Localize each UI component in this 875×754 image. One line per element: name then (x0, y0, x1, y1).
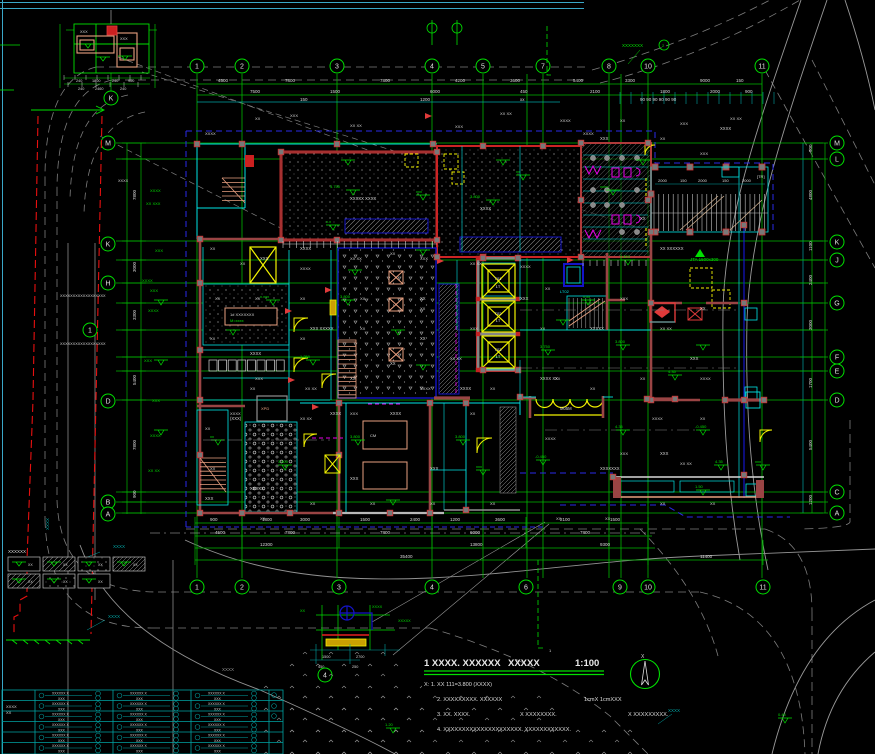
svg-text:K: K (109, 96, 114, 103)
svg-text:4500: 4500 (215, 530, 226, 535)
svg-text:35400: 35400 (400, 554, 413, 559)
svg-text:XX: XX (390, 361, 396, 366)
svg-text:3300: 3300 (625, 78, 636, 83)
svg-text:XX: XX (490, 501, 496, 506)
svg-text:xx: xx (516, 169, 520, 174)
svg-text:XXXXXX X: XXXXXX X (208, 702, 226, 706)
svg-text:JTA 1500x300: JTA 1500x300 (690, 257, 719, 262)
svg-text:xx: xx (210, 434, 214, 439)
svg-text:XX XX: XX XX (350, 256, 362, 261)
svg-text:XX: XX (360, 326, 366, 331)
svg-text:XXXX: XXXX (250, 351, 261, 356)
svg-text:XXXX: XXXX (222, 667, 234, 672)
svg-text:XXXXXX X: XXXXXX X (52, 692, 70, 696)
svg-text:xxxx: xxxx (600, 184, 608, 189)
svg-text:XXX: XXX (690, 356, 699, 361)
svg-text:3.800: 3.800 (620, 254, 631, 259)
svg-text:XXX: XXX (214, 708, 222, 712)
svg-text:XXXXXX X: XXXXXX X (52, 723, 70, 727)
svg-text:T03: T03 (495, 347, 503, 352)
svg-text:3.800: 3.800 (350, 434, 361, 439)
svg-text:4.35: 4.35 (715, 459, 724, 464)
svg-text:XXXXXX X: XXXXXX X (208, 692, 226, 696)
svg-text:XX: XX (420, 306, 426, 311)
svg-text:XX XXX: XX XXX (146, 201, 161, 206)
svg-text:XXX: XXX (350, 411, 358, 416)
svg-text:450: 450 (520, 89, 528, 94)
svg-text:1.20: 1.20 (385, 722, 394, 727)
svg-text:XX XX: XX XX (148, 468, 160, 473)
svg-text:x.x: x.x (326, 219, 331, 224)
svg-text:XXXX: XXXX (142, 278, 153, 283)
svg-text:XXX: XXX (136, 708, 144, 712)
svg-text:K: K (106, 242, 111, 249)
svg-text:D: D (834, 398, 839, 405)
svg-text:XXXXXX X: XXXXXX X (130, 692, 148, 696)
svg-text:M: M (105, 141, 111, 148)
svg-text:XXX: XXX (255, 376, 263, 381)
svg-text:2: 2 (240, 64, 244, 71)
svg-text:XXXX: XXXX (150, 433, 161, 438)
svg-text:7800: 7800 (132, 439, 137, 450)
svg-text:900: 900 (745, 89, 753, 94)
svg-text:XX: XX (420, 336, 426, 341)
svg-text:x.xx: x.xx (583, 294, 590, 299)
svg-text:XXX: XXX (600, 136, 609, 141)
svg-text:XX: XX (310, 501, 316, 506)
svg-text:M=xxxx: M=xxxx (230, 318, 244, 323)
svg-text:XX XX: XX XX (300, 416, 312, 421)
svg-text:1.250: 1.250 (300, 354, 311, 359)
svg-text:XXX: XXX (58, 697, 66, 701)
svg-text:XXXX: XXXX (720, 126, 731, 131)
svg-text:XX: XX (240, 261, 246, 266)
svg-text:T01: T01 (495, 276, 503, 281)
svg-text:XX: XX (28, 580, 33, 584)
svg-text:2400: 2400 (410, 517, 421, 522)
svg-text:2100: 2100 (590, 89, 601, 94)
svg-text:XXX: XXX (136, 718, 144, 722)
svg-text:XX: XX (210, 246, 216, 251)
svg-text:1: 1 (195, 64, 199, 71)
svg-text:XXXXXX X: XXXXXX X (130, 734, 148, 738)
svg-text:XXX: XXX (214, 739, 222, 743)
svg-text:3.750: 3.750 (330, 184, 341, 189)
svg-text:1500: 1500 (610, 517, 621, 522)
svg-text:XXX: XXX (150, 288, 158, 293)
svg-text:150: 150 (722, 178, 729, 183)
svg-text:XX XX: XX XX (470, 261, 482, 266)
svg-text:XXX: XXX (700, 151, 708, 156)
svg-text:3600: 3600 (510, 78, 521, 83)
svg-text:XX: XX (28, 563, 33, 567)
svg-text:XPD: XPD (261, 406, 269, 411)
svg-text:[TR]: [TR] (757, 174, 765, 179)
svg-text:3.800: 3.800 (340, 294, 351, 299)
svg-text:9000: 9000 (700, 78, 711, 83)
svg-text:-0.450: -0.450 (695, 424, 707, 429)
svg-text:XXXX: XXXX (480, 206, 491, 211)
svg-text:XX: XX (255, 116, 261, 121)
svg-text:XXXXX: XXXXX (508, 658, 540, 669)
svg-text:XXXX: XXXX (108, 614, 120, 619)
svg-text:XX: XX (98, 580, 103, 584)
svg-text:XXX: XXX (58, 739, 66, 743)
svg-text:5400: 5400 (573, 78, 584, 83)
svg-text:XXXXXX X: XXXXXX X (52, 734, 70, 738)
svg-text:XX: XX (420, 296, 426, 301)
svg-text:240: 240 (78, 87, 84, 91)
svg-text:XXXX: XXXX (545, 436, 556, 441)
svg-text:8: 8 (607, 64, 611, 71)
svg-text:7500: 7500 (250, 89, 261, 94)
svg-text:XX: XX (640, 216, 646, 221)
svg-text:XXX: XXX (120, 37, 128, 41)
svg-text:XXXXX: XXXXX (398, 619, 411, 623)
svg-text:2000: 2000 (698, 178, 708, 183)
svg-text:3.800: 3.800 (278, 459, 289, 464)
svg-text:900: 900 (808, 144, 813, 152)
svg-text:150: 150 (300, 97, 308, 102)
svg-text:XXXX: XXXX (230, 411, 241, 416)
svg-text:X: 1. XX 111=3.800 (XXXX): X: 1. XX 111=3.800 (XXXX) (424, 682, 492, 688)
svg-text:XXX: XXX (152, 398, 160, 403)
svg-text:M05M: M05M (560, 406, 572, 411)
svg-text:XXX: XXX (260, 256, 269, 261)
svg-text:L: L (835, 157, 839, 164)
svg-text:1cmX 1cmXXX: 1cmX 1cmXXX (584, 697, 622, 703)
svg-text:XXX: XXX (520, 296, 529, 301)
svg-text:1800: 1800 (660, 89, 671, 94)
svg-text:XX: XX (590, 386, 596, 391)
svg-text:XX: XX (350, 376, 356, 381)
svg-text:3.750: 3.750 (540, 344, 551, 349)
svg-text:(XXX): (XXX) (230, 416, 242, 421)
svg-text:1.50: 1.50 (695, 484, 704, 489)
svg-text:XX: XX (205, 426, 211, 431)
svg-text:240: 240 (76, 79, 82, 83)
svg-text:XX: XX (300, 609, 306, 613)
svg-text:1:100: 1:100 (575, 658, 599, 669)
svg-text:XXX: XXX (58, 729, 66, 733)
svg-text:XXX: XXX (205, 496, 214, 501)
svg-text:11: 11 (759, 585, 766, 592)
svg-text:XXXXXX X: XXXXXX X (52, 702, 70, 706)
svg-text:7800: 7800 (285, 78, 296, 83)
svg-text:XX: XX (660, 136, 666, 141)
svg-text:7800: 7800 (380, 530, 391, 535)
svg-text:XXX: XXX (136, 697, 144, 701)
svg-text:11400: 11400 (700, 554, 713, 559)
svg-text:XXXXXX X: XXXXXX X (130, 744, 148, 748)
svg-text:XXXXXX X: XXXXXX X (208, 713, 226, 717)
svg-text:XX: XX (360, 296, 366, 301)
svg-text:LT02: LT02 (560, 289, 570, 294)
svg-text:7: 7 (541, 64, 545, 71)
svg-text:3.800: 3.800 (615, 339, 626, 344)
svg-text:XX XX: XX XX (450, 356, 462, 361)
svg-text:9300: 9300 (600, 542, 611, 547)
svg-text:0.45: 0.45 (778, 712, 787, 717)
svg-text:XX: XX (98, 563, 103, 567)
svg-text:XX XX: XX XX (350, 123, 362, 128)
svg-text:XXX: XXX (136, 750, 144, 754)
svg-text:XXXXXX X: XXXXXX X (130, 702, 148, 706)
svg-text:x.xxx: x.xxx (260, 294, 269, 299)
svg-text:1T: 1T (496, 284, 501, 289)
svg-text:XXXX: XXXX (205, 131, 216, 136)
svg-text:XX XX: XX XX (680, 461, 692, 466)
svg-text:7800: 7800 (132, 189, 137, 200)
svg-text:1T: 1T (496, 318, 501, 323)
svg-text:XX: XX (470, 411, 476, 416)
svg-text:XX: XX (555, 376, 561, 381)
svg-text:D: D (105, 399, 110, 406)
svg-text:1200: 1200 (450, 517, 461, 522)
svg-text:XXXXX XXXX: XXXXX XXXX (350, 196, 377, 201)
svg-text:900: 900 (128, 79, 134, 83)
svg-text:XXXX: XXXX (700, 376, 711, 381)
svg-text:XXX: XXX (455, 124, 463, 129)
svg-text:J: J (835, 258, 839, 265)
svg-text:240: 240 (112, 79, 118, 83)
svg-text:XX: XX (300, 336, 306, 341)
svg-text:2100: 2100 (560, 517, 571, 522)
svg-text:C: C (834, 490, 839, 497)
svg-text:XXXXXX X: XXXXXX X (52, 713, 70, 717)
svg-text:XXXXXXX: XXXXXXX (622, 43, 643, 48)
svg-text:5400: 5400 (132, 374, 137, 385)
svg-text:XXX: XXX (155, 248, 163, 253)
svg-text:XXX: XXX (660, 451, 669, 456)
svg-text:10: 10 (644, 64, 652, 71)
svg-text:XX: XX (390, 251, 396, 256)
svg-text:4.35: 4.35 (615, 424, 624, 429)
svg-text:1700: 1700 (808, 377, 813, 388)
svg-text:T02: T02 (495, 311, 503, 316)
svg-text:XXXX: XXXX (118, 179, 129, 183)
svg-text:XXXX: XXXX (668, 708, 680, 713)
svg-text:XXXXXXXXXXXXXXXXXX: XXXXXXXXXXXXXXXXXX (60, 342, 106, 346)
svg-text:3: 3 (337, 585, 341, 592)
svg-text:XXX: XXX (58, 708, 66, 712)
svg-text:4.35: 4.35 (668, 369, 677, 374)
svg-text:1500: 1500 (330, 89, 341, 94)
svg-text:xxx: xxx (416, 189, 422, 194)
svg-text:XXXX: XXXX (148, 308, 159, 313)
svg-text:XXX: XXX (136, 729, 144, 733)
svg-text:150: 150 (680, 178, 687, 183)
svg-text:XX: XX (255, 296, 261, 301)
svg-text:900: 900 (132, 490, 137, 498)
svg-text:1100: 1100 (808, 241, 813, 251)
svg-text:XXX: XXX (144, 358, 152, 363)
svg-text:XX: XX (6, 710, 12, 715)
svg-text:10: 10 (644, 585, 652, 592)
svg-text:XXXX: XXXX (45, 518, 50, 530)
svg-text:1 XXXX. XXXXXX: 1 XXXX. XXXXXX (424, 658, 501, 669)
svg-text:XX: XX (490, 386, 496, 391)
svg-text:XX XX: XX XX (660, 326, 672, 331)
svg-text:XXXX: XXXX (372, 605, 383, 609)
svg-text:XX: XX (640, 376, 646, 381)
svg-text:12300: 12300 (260, 542, 273, 547)
svg-text:3000: 3000 (300, 517, 311, 522)
svg-text:XX: XX (430, 501, 436, 506)
svg-text:XXX: XXX (80, 30, 88, 34)
svg-text:A: A (106, 512, 111, 519)
svg-text:3000: 3000 (808, 319, 813, 330)
svg-text:XXX: XXX (58, 750, 66, 754)
svg-text:XXXXXX X: XXXXXX X (208, 744, 226, 748)
svg-text:E: E (835, 369, 840, 376)
svg-text:3000: 3000 (132, 261, 137, 272)
svg-text:2000: 2000 (742, 178, 752, 183)
svg-text:XXXXXXXXXXXXXXXXXX: XXXXXXXXXXXXXXXXXX (60, 294, 106, 298)
svg-text:6000: 6000 (430, 89, 441, 94)
svg-text:XX: XX (210, 336, 216, 341)
svg-text:-0.450: -0.450 (535, 454, 547, 459)
svg-text:2460: 2460 (95, 87, 103, 91)
svg-text:xx: xx (520, 97, 525, 102)
svg-text:XXX: XXX (290, 113, 298, 118)
svg-text:XXX XXXXX: XXX XXXXX (310, 326, 334, 331)
svg-text:1: 1 (88, 328, 92, 335)
svg-text:XX: XX (370, 501, 376, 506)
svg-text:XXX: XXX (620, 451, 628, 456)
svg-text:5: 5 (481, 64, 485, 71)
svg-text:2000: 2000 (710, 89, 721, 94)
svg-text:150: 150 (736, 78, 744, 83)
svg-text:XX XX: XX XX (305, 386, 317, 391)
svg-text:XXXXX: XXXXX (590, 326, 604, 331)
svg-text:A: A (835, 511, 840, 518)
svg-text:1500: 1500 (360, 517, 371, 522)
svg-text:XXXX: XXXX (300, 246, 311, 251)
svg-text:11: 11 (758, 64, 765, 71)
svg-text:1T: 1T (496, 354, 501, 359)
svg-text:XXXX: XXXX (560, 118, 571, 123)
svg-text:XXXX: XXXX (520, 264, 531, 269)
svg-text:7800: 7800 (380, 78, 391, 83)
svg-text:XXXX: XXXX (330, 411, 341, 416)
svg-text:2400: 2400 (808, 274, 813, 285)
svg-text:XXXX: XXXX (113, 544, 125, 549)
svg-text:7800: 7800 (285, 530, 296, 535)
svg-text:XX: XX (260, 516, 266, 521)
svg-text:6000: 6000 (470, 530, 481, 535)
svg-text:B: B (106, 500, 111, 507)
svg-text:4800: 4800 (808, 189, 813, 200)
svg-text:XXXX: XXXX (300, 266, 311, 271)
svg-text:K: K (835, 240, 840, 247)
svg-text:XXX: XXX (136, 739, 144, 743)
svg-text:6: 6 (524, 585, 528, 592)
svg-text:XXX: XXX (620, 296, 628, 301)
svg-text:XXXXXX X: XXXXXX X (130, 713, 148, 717)
svg-text:XX: XX (300, 296, 306, 301)
svg-text:3: 3 (335, 64, 339, 71)
svg-text:XXX: XXX (680, 121, 688, 126)
svg-text:4: 4 (430, 585, 434, 592)
svg-text:XXXXXX X: XXXXXX X (208, 723, 226, 727)
svg-text:XXX: XXX (58, 718, 66, 722)
svg-text:XX: XX (710, 501, 716, 506)
svg-text:XXXX: XXXX (652, 416, 663, 421)
svg-text:XX: XX (620, 118, 626, 123)
svg-text:1800: 1800 (92, 79, 100, 83)
svg-text:XX: XX (700, 416, 706, 421)
svg-text:XX: XX (63, 580, 68, 584)
svg-text:1200: 1200 (420, 97, 431, 102)
svg-text:XX: XX (250, 386, 256, 391)
svg-text:XXXXX: XXXXX (250, 486, 264, 491)
svg-text:xxx: xxx (476, 464, 482, 469)
svg-text:XX XX: XX XX (730, 116, 742, 121)
svg-text:XXX: XXX (420, 256, 428, 261)
svg-text:4200: 4200 (455, 78, 466, 83)
svg-text:XX: XX (133, 563, 138, 567)
svg-text:XXX: XXX (350, 476, 359, 481)
svg-text:XX: XX (700, 306, 706, 311)
svg-text:5400: 5400 (808, 439, 813, 450)
svg-text:1: 1 (195, 585, 199, 592)
svg-text:9: 9 (618, 585, 622, 592)
svg-text:XXXX: XXXX (390, 411, 401, 416)
svg-text:2000: 2000 (658, 178, 668, 183)
svg-text:F: F (835, 355, 839, 362)
svg-text:M: M (834, 141, 840, 148)
svg-text:3300: 3300 (132, 309, 137, 320)
svg-text:4500: 4500 (218, 78, 229, 83)
svg-text:XX: XX (215, 296, 221, 301)
svg-text:13800: 13800 (470, 542, 483, 547)
svg-text:90 90 90 90 90 90: 90 90 90 90 90 90 (640, 97, 677, 102)
svg-text:XXXXXXX: XXXXXXX (600, 466, 620, 471)
svg-text:1# XXXXXXX: 1# XXXXXXX (230, 312, 255, 317)
svg-text:XX XX: XX XX (500, 111, 512, 116)
svg-text:XXXX: XXXX (583, 131, 594, 136)
svg-text:2: 2 (240, 585, 244, 592)
svg-text:XXX: XXX (214, 729, 222, 733)
svg-text:XXXX: XXXX (460, 386, 471, 391)
svg-text:3600: 3600 (495, 517, 506, 522)
svg-text:XXXXXX: XXXXXX (8, 549, 26, 554)
svg-text:XXX: XXX (214, 718, 222, 722)
svg-text:3.800: 3.800 (470, 194, 481, 199)
svg-text:XX: XX (660, 501, 666, 506)
svg-text:1200: 1200 (808, 494, 813, 505)
svg-text:CM: CM (370, 433, 376, 438)
svg-text:XXXXXX X: XXXXXX X (52, 744, 70, 748)
svg-text:xxx: xxx (755, 459, 761, 464)
svg-text:XX: XX (545, 286, 551, 291)
svg-text:XX: XX (210, 466, 216, 471)
svg-text:4: 4 (430, 64, 434, 71)
svg-text:XXX: XXX (470, 326, 478, 331)
svg-text:XX: XX (605, 516, 611, 521)
svg-text:240: 240 (120, 87, 126, 91)
svg-text:XXXX: XXXX (6, 704, 17, 709)
svg-text:XXX: XXX (214, 750, 222, 754)
svg-text:900: 900 (210, 517, 218, 522)
svg-text:XX: XX (63, 563, 68, 567)
svg-text:XXXX: XXXX (420, 386, 431, 391)
svg-text:XXXXXX X: XXXXXX X (208, 734, 226, 738)
svg-text:H: H (105, 281, 110, 288)
svg-text:XX XXXXXX: XX XXXXXX (660, 246, 684, 251)
svg-text:X XXXXXXXXX.: X XXXXXXXXX. (628, 712, 669, 718)
